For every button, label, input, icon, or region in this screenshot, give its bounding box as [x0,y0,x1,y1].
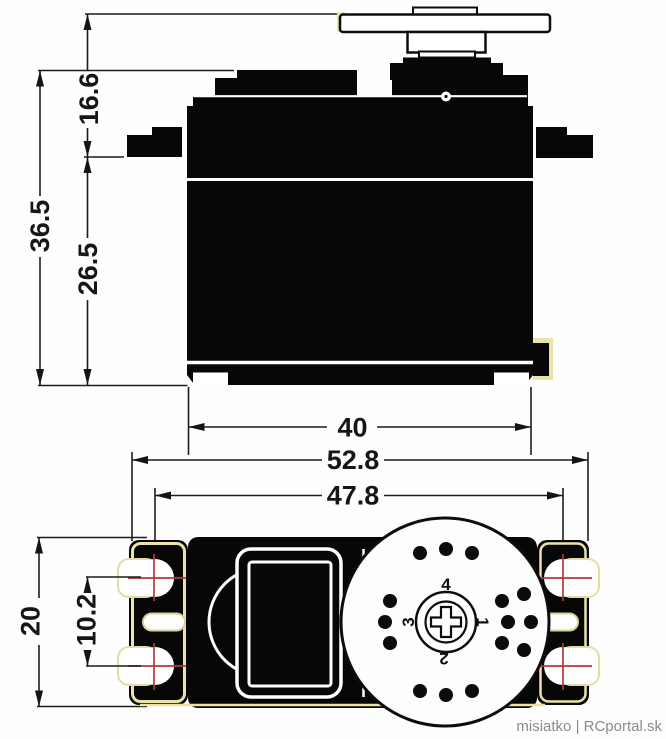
top-cover-step-right [392,65,502,76]
horn-mark-bottom: 2 [439,649,448,668]
horn-hole [413,546,427,560]
dim-16-6-label: 16.6 [74,73,104,126]
servo-horn-disc: 4 3 2 1 [341,518,549,726]
foot-cutout-right [494,373,529,387]
arrowhead [84,369,92,385]
dim-47-8-label: 47.8 [327,481,380,511]
horn-hole [383,594,397,608]
servo-case-side [127,58,593,387]
arrowhead [189,423,205,431]
dim-52-8-label: 52.8 [327,445,380,475]
mount-tab-right-step [536,127,567,136]
horn-hole [495,594,509,608]
dimension-mount-hole-span: 47.8 [155,481,563,543]
dim-26-5-label: 26.5 [73,243,103,296]
wire-grommet [533,343,549,376]
top-cover-step-left [215,78,237,98]
arrowhead [84,157,92,173]
arrowhead [547,492,563,500]
horn-hole [465,684,479,698]
arrowhead [84,650,92,666]
arrowhead [132,456,148,464]
dim-20-label: 20 [16,606,46,636]
horn-hole [517,643,531,657]
servo-dimension-drawing: 16.6 36.5 26.5 40 [0,0,666,739]
label-plate-inner [249,562,331,686]
horn-hole [517,587,531,601]
arrowhead [84,577,92,593]
shaft-base-plate [419,52,475,58]
horn-mark-left: 3 [399,617,418,626]
dim-40-label: 40 [337,413,367,443]
arrowhead [36,369,44,385]
arrowhead [515,423,531,431]
top-cover-right [392,75,528,98]
mount-tab-right [536,135,593,158]
tab-left-slot [143,614,185,631]
arrowhead [84,141,92,157]
arrowhead [36,71,44,87]
horn-hole [501,615,515,629]
horn-mark-top: 4 [441,575,451,594]
seam-pivot-center [444,95,447,98]
horn-mark-right: 1 [473,617,492,626]
horn-hole [465,546,479,560]
foot-cutout-left [193,373,228,387]
dimension-flange-to-base: 26.5 [73,157,103,385]
arrowhead [35,691,43,707]
horn-hole [378,615,392,629]
dim-10-2-label: 10.2 [72,594,102,647]
top-view: 52.8 47.8 20 [16,445,600,726]
horn-hole [495,636,509,650]
horn-hole [413,684,427,698]
horn-hole [383,636,397,650]
arrowhead [572,456,588,464]
mount-tab-left-step [152,127,182,136]
case-body [187,106,533,385]
horn-arm [340,15,550,33]
servo-horn [340,8,550,58]
flange-bar [403,58,491,64]
side-view: 16.6 36.5 26.5 40 [25,8,593,456]
dim-36-5-label: 36.5 [25,200,55,253]
watermark: misiatko | RCportal.sk [516,718,662,735]
horn-hole [524,615,538,629]
mount-tab-left-plan [118,540,188,705]
top-cover-left [237,70,357,98]
mount-tab-left [127,135,182,157]
horn-hole [439,542,453,556]
top-cover-bar [193,97,528,106]
arrowhead [84,14,92,30]
output-shaft [408,32,486,53]
arrowhead [35,538,43,554]
horn-hole [439,688,453,702]
arrowhead [155,492,171,500]
